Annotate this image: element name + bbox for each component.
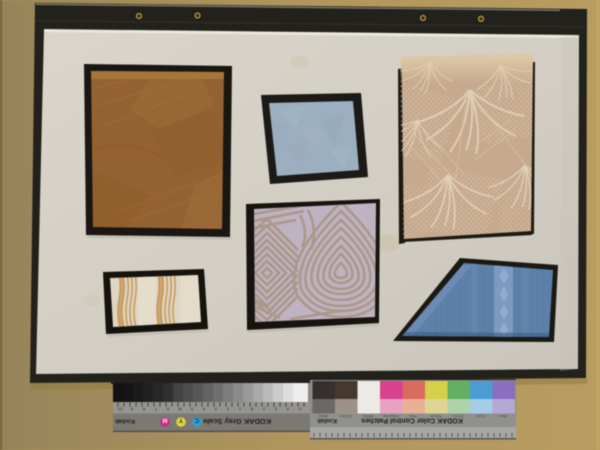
svg-text:Kodak: Kodak bbox=[115, 417, 135, 424]
svg-text:Cyan: Cyan bbox=[476, 414, 485, 419]
svg-text:Blue: Blue bbox=[498, 414, 507, 419]
svg-text:Red: Red bbox=[409, 414, 416, 419]
svg-text:A: A bbox=[298, 407, 301, 412]
svg-text:White: White bbox=[362, 414, 373, 419]
svg-text:Magenta: Magenta bbox=[382, 414, 398, 419]
svg-text:B: B bbox=[250, 407, 253, 412]
svg-text:Y: Y bbox=[179, 417, 183, 423]
svg-text:KODAK Gray Scale: KODAK Gray Scale bbox=[203, 417, 271, 426]
svg-text:3/Color: 3/Color bbox=[339, 414, 353, 419]
svg-text:01: 01 bbox=[117, 407, 123, 412]
svg-text:Green: Green bbox=[452, 414, 463, 419]
svg-text:Yellow: Yellow bbox=[430, 414, 442, 419]
svg-text:M: M bbox=[178, 407, 182, 412]
svg-text:C: C bbox=[194, 417, 199, 423]
svg-text:M: M bbox=[163, 417, 168, 423]
svg-text:Black: Black bbox=[318, 414, 328, 419]
